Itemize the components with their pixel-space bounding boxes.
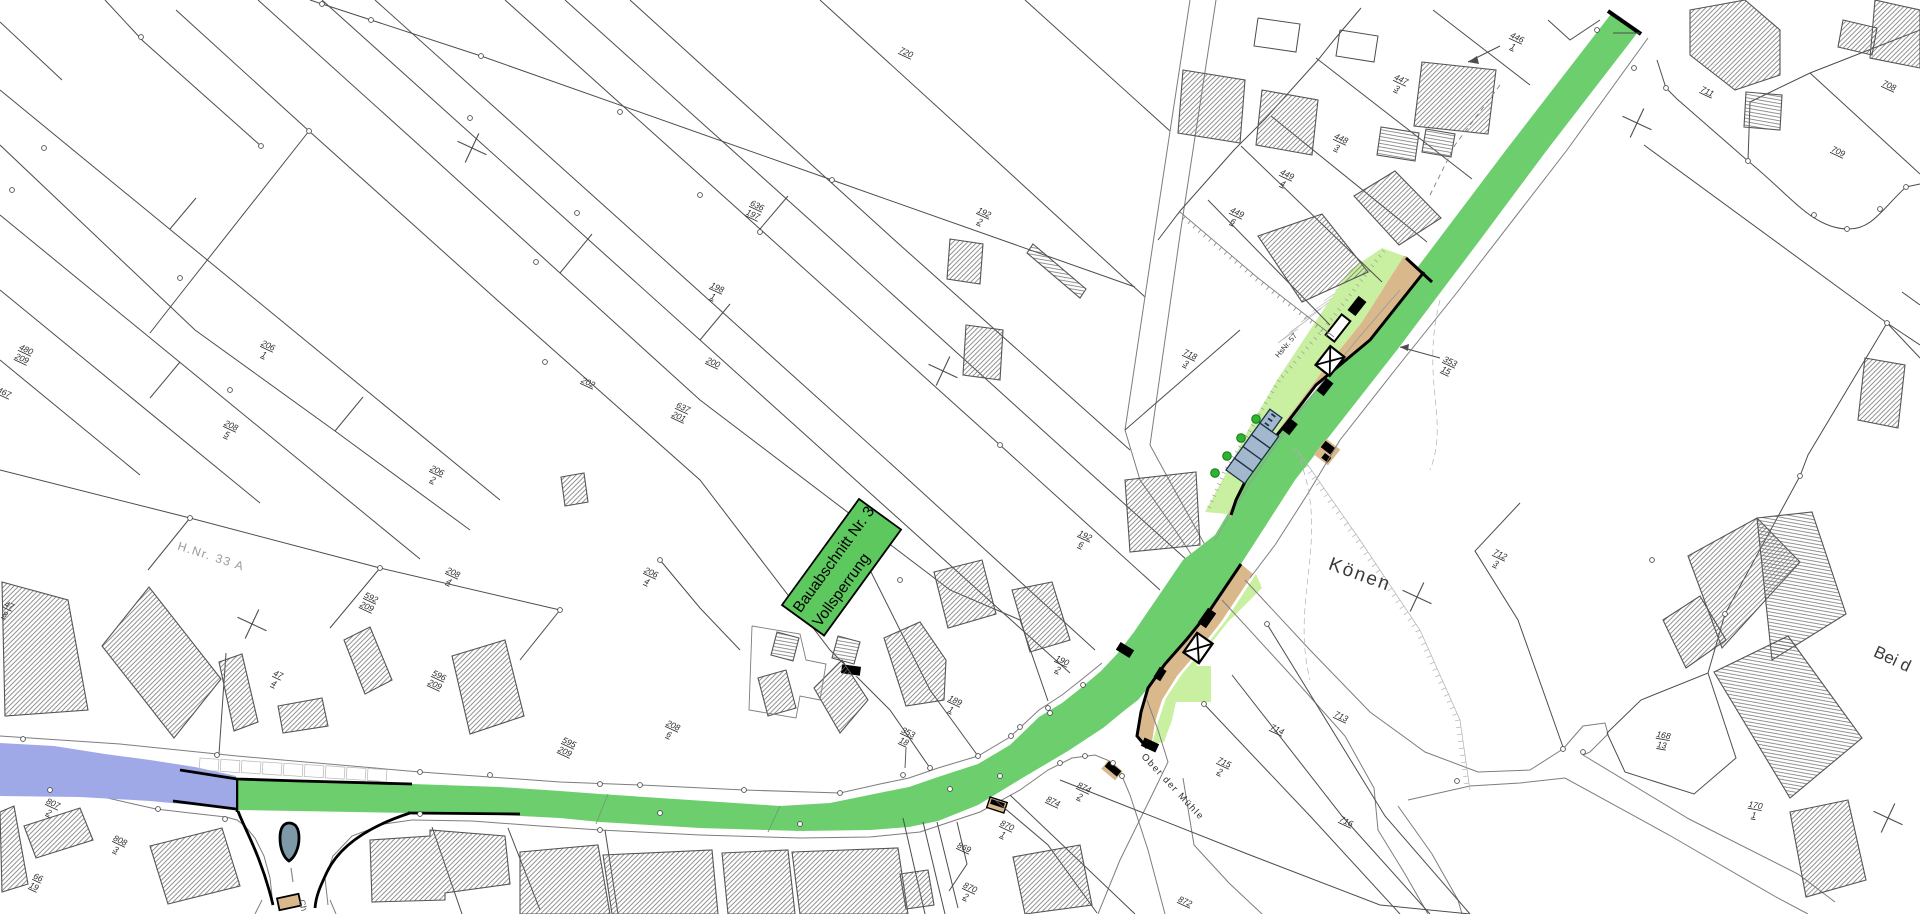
svg-text:13: 13 [1656, 739, 1667, 751]
